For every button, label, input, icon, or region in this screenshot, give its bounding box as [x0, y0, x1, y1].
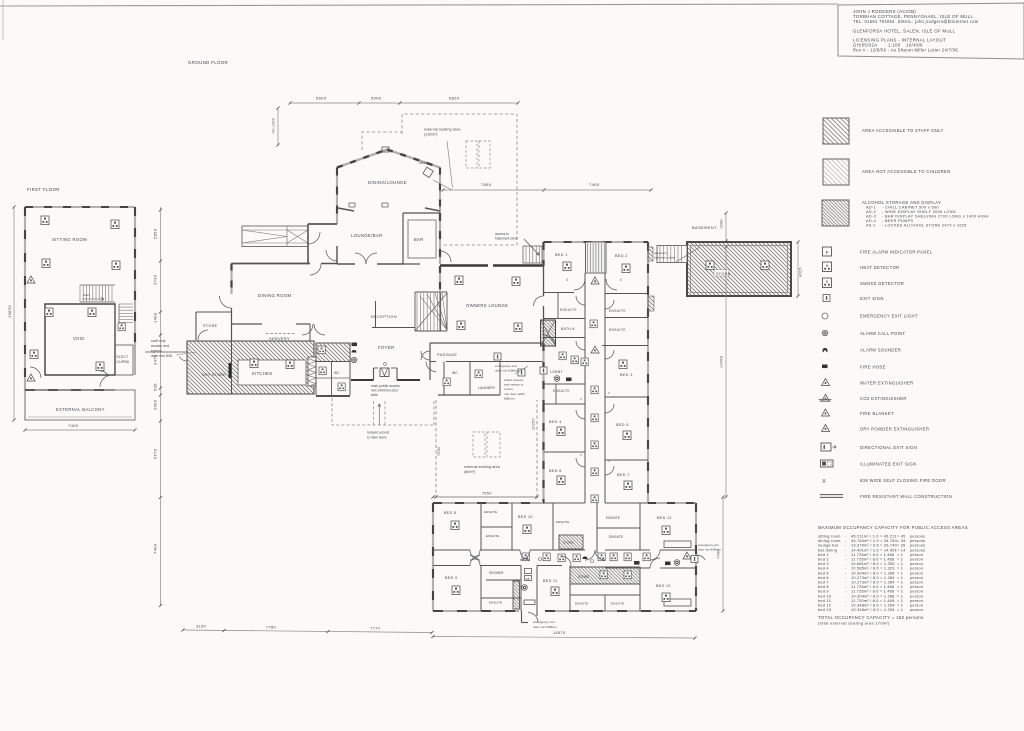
svg-text:BED 7: BED 7 — [617, 473, 630, 477]
svg-text:- CHILL CABINET 500 x 600: - CHILL CABINET 500 x 600 — [882, 206, 939, 210]
svg-text:5850: 5850 — [153, 228, 158, 239]
svg-text:LOBBY: LOBBY — [550, 370, 563, 374]
svg-text:(130m²): (130m²) — [424, 132, 438, 136]
svg-text:7400: 7400 — [589, 182, 600, 187]
svg-text:1940: 1940 — [720, 219, 724, 229]
svg-text:public access: public access — [504, 378, 524, 382]
svg-text:bed 13: bed 13 — [818, 607, 831, 612]
svg-text:(80m²): (80m²) — [464, 470, 475, 474]
svg-text:838 WIDE SELF CLOSING FIRE DOO: 838 WIDE SELF CLOSING FIRE DOOR — [860, 478, 946, 483]
svg-text:basement store: basement store — [654, 255, 676, 259]
svg-text:and egress to: and egress to — [504, 383, 524, 387]
svg-text:FIRE ALARM INDICATOR PANEL: FIRE ALARM INDICATOR PANEL — [860, 250, 933, 255]
svg-text:7650: 7650 — [437, 446, 441, 456]
svg-text:ENSUITE: ENSUITE — [486, 534, 499, 538]
svg-text:AS-1: AS-1 — [866, 224, 876, 228]
svg-text:RECEPTION: RECEPTION — [371, 314, 397, 319]
svg-text:4015: 4015 — [799, 267, 803, 277]
svg-text:OWNERS LOUNGE: OWNERS LOUNGE — [466, 303, 508, 308]
svg-text:staff only: staff only — [151, 339, 166, 343]
svg-text:STORE: STORE — [203, 324, 218, 328]
svg-text:3730: 3730 — [153, 274, 158, 285]
svg-text:2060: 2060 — [153, 399, 158, 410]
svg-text:AREA ACCESSIBLE TO STAFF ONLY: AREA ACCESSIBLE TO STAFF ONLY — [862, 128, 944, 133]
svg-text:ENSUITE: ENSUITE — [556, 520, 569, 524]
svg-text:WATER EXTINGUISHER: WATER EXTINGUISHER — [860, 380, 914, 385]
svg-text:838mm: 838mm — [504, 396, 515, 400]
svg-text:door min 838mm: door min 838mm — [698, 548, 721, 552]
svg-text:access to: access to — [495, 232, 509, 236]
svg-text:BED 5: BED 5 — [616, 423, 629, 427]
svg-text:ALCOHOL STORAGE AND DISPLAY: ALCOHOL STORAGE AND DISPLAY — [862, 200, 941, 205]
svg-text:BED 1: BED 1 — [555, 253, 568, 257]
svg-text:door min 838mm: door min 838mm — [533, 625, 557, 629]
svg-text:WC: WC — [452, 371, 458, 375]
svg-text:ENSUITE: ENSUITE — [611, 602, 624, 606]
svg-text:main public access: main public access — [371, 384, 400, 388]
svg-text:BED 13: BED 13 — [656, 584, 671, 588]
svg-text:STORE: STORE — [563, 541, 574, 545]
svg-text:7780: 7780 — [266, 625, 277, 630]
svg-text:STORE: STORE — [716, 272, 731, 276]
svg-text:TOTAL OCCUPANCY CAPACITY = 150: TOTAL OCCUPANCY CAPACITY = 150 persons — [818, 615, 924, 620]
svg-text:ENSUITE: ENSUITE — [609, 328, 626, 332]
svg-text:SERVERY: SERVERY — [269, 336, 290, 341]
svg-text:EXTERNAL BALCONY: EXTERNAL BALCONY — [56, 407, 105, 412]
svg-text:BED 11: BED 11 — [543, 579, 558, 583]
svg-text:ENSUITE: ENSUITE — [484, 510, 497, 514]
svg-text:GLENFORSA HOTEL, SALEN, ISLE O: GLENFORSA HOTEL, SALEN, ISLE OF MULL — [853, 28, 956, 33]
svg-text:10.348m² / 8.0 = 1.294: 10.348m² / 8.0 = 1.294 — [851, 607, 895, 612]
svg-text:DRY STORE: DRY STORE — [202, 373, 226, 377]
svg-text:PASSAGE: PASSAGE — [437, 353, 457, 357]
svg-text:AD-2: AD-2 — [866, 210, 876, 214]
svg-text:door min 838mm: door min 838mm — [495, 369, 519, 373]
svg-text:X: X — [580, 397, 582, 401]
svg-text:to main doors: to main doors — [367, 435, 387, 439]
svg-text:15820: 15820 — [7, 305, 12, 318]
svg-text:stove: stove — [419, 161, 427, 165]
svg-text:ALARM SOUNDER: ALARM SOUNDER — [860, 348, 901, 353]
svg-text:(total external seating area 1: (total external seating area 170m²) — [818, 620, 890, 625]
svg-text:BED 3: BED 3 — [620, 373, 633, 377]
svg-text:DINING/LOUNGE: DINING/LOUNGE — [368, 180, 407, 185]
svg-text:X: X — [608, 391, 610, 395]
svg-text:AD-4: AD-4 — [866, 219, 876, 223]
svg-text:7400: 7400 — [68, 423, 79, 428]
svg-text:FIRE RESISTANT WALL CONSTRUCTI: FIRE RESISTANT WALL CONSTRUCTION — [860, 494, 952, 499]
svg-text:EMAIL: john.jrodgers@btinterne: EMAIL: john.jrodgers@btinternet.com — [898, 19, 979, 24]
svg-text:FIRST FLOOR: FIRST FLOOR — [27, 187, 60, 192]
svg-text:BED 9: BED 9 — [445, 576, 457, 580]
svg-text:7400: 7400 — [153, 543, 158, 554]
svg-text:rooms: rooms — [504, 387, 513, 391]
svg-text:DIRECTIONAL EXIT SIGN: DIRECTIONAL EXIT SIGN — [860, 445, 917, 450]
svg-text:WB: WB — [526, 578, 530, 581]
svg-text:10250: 10250 — [532, 418, 536, 430]
svg-text:ENSUITE: ENSUITE — [609, 309, 626, 313]
svg-text:+0/-1300: +0/-1300 — [272, 118, 276, 134]
svg-text:access and: access and — [151, 344, 169, 348]
svg-text:F: F — [826, 250, 829, 255]
svg-text:GROUND FLOOR: GROUND FLOOR — [188, 60, 228, 65]
svg-text:BED 8: BED 8 — [444, 511, 456, 515]
svg-text:min door width: min door width — [504, 392, 525, 396]
svg-text:X: X — [577, 361, 579, 365]
svg-text:FIRE HOSE: FIRE HOSE — [860, 364, 886, 369]
svg-text:AD-3: AD-3 — [866, 215, 876, 219]
svg-text:3100: 3100 — [196, 624, 207, 629]
svg-text:BATH A: BATH A — [561, 327, 575, 331]
svg-text:basement store: basement store — [495, 237, 518, 241]
svg-text:7770: 7770 — [370, 626, 381, 631]
svg-text:SITTING ROOM: SITTING ROOM — [52, 237, 87, 242]
svg-text:ENSUITE: ENSUITE — [606, 516, 620, 520]
svg-text:ENSUITE: ENSUITE — [489, 601, 502, 605]
svg-text:wide: wide — [371, 393, 378, 397]
svg-text:MAXIMUM OCCUPANCY CAPACITY FOR: MAXIMUM OCCUPANCY CAPACITY FOR PUBLIC AC… — [818, 525, 968, 530]
svg-text:CUPBD: CUPBD — [117, 360, 130, 364]
svg-text:WC: WC — [334, 371, 340, 375]
svg-text:- WINE DISPLAY SHELF 3000 LON: - WINE DISPLAY SHELF 3000 LONG — [882, 210, 956, 214]
svg-text:X: X — [608, 459, 610, 463]
svg-text:5570: 5570 — [153, 448, 158, 459]
svg-text:AD-1: AD-1 — [866, 206, 876, 210]
svg-text:BED 10: BED 10 — [518, 515, 533, 519]
svg-text:STORE: STORE — [578, 575, 589, 579]
svg-text:BED 4: BED 4 — [549, 420, 562, 424]
svg-text:BED 12: BED 12 — [657, 516, 672, 520]
svg-text:BED 6: BED 6 — [549, 469, 562, 473]
svg-text:FIRE BLANKET: FIRE BLANKET — [860, 411, 894, 416]
svg-text:door min 838: door min 838 — [151, 354, 172, 358]
svg-text:1400: 1400 — [153, 312, 158, 323]
svg-text:Rev A - 12/8/06 - As Sharon Mi: Rev A - 12/8/06 - As Sharon Miller Lette… — [853, 47, 958, 52]
svg-text:BED 2: BED 2 — [615, 254, 628, 258]
svg-text:DINING ROOM: DINING ROOM — [258, 293, 292, 298]
svg-text:X: X — [822, 479, 826, 485]
svg-text:external seating area: external seating area — [464, 465, 500, 469]
svg-text:- BEER PUMPS: - BEER PUMPS — [882, 219, 914, 223]
svg-text:7650: 7650 — [482, 492, 492, 496]
svg-text:TEL: 01681 704054: TEL: 01681 704054 — [853, 19, 895, 24]
svg-text:emergency exit: emergency exit — [533, 620, 555, 624]
svg-text:ILLUMINATED EXIT SIGN: ILLUMINATED EXIT SIGN — [860, 462, 917, 467]
svg-text:emergency exit: emergency exit — [698, 543, 719, 547]
svg-text:down: down — [83, 293, 90, 297]
svg-text:CO2 EXTINGUISHER: CO2 EXTINGUISHER — [860, 396, 907, 401]
svg-text:ENSUITE: ENSUITE — [609, 535, 623, 539]
svg-text:5600: 5600 — [316, 96, 327, 101]
svg-text:500: 500 — [153, 383, 158, 391]
svg-text:LAUNDRY: LAUNDRY — [478, 386, 496, 390]
svg-text:VOID: VOID — [73, 336, 85, 341]
svg-text:KITCHEN: KITCHEN — [252, 371, 272, 376]
svg-text:AREA NOT ACCESSIBLE TO CHILDRE: AREA NOT ACCESSIBLE TO CHILDREN — [862, 169, 951, 174]
svg-text:14570: 14570 — [553, 630, 566, 635]
svg-text:= 1: = 1 — [897, 607, 903, 612]
svg-text:person: person — [910, 607, 923, 612]
svg-text:H: H — [826, 264, 829, 268]
svg-text:BAR: BAR — [414, 237, 424, 242]
svg-text:HEAT DETECTOR: HEAT DETECTOR — [860, 265, 899, 270]
svg-text:emergency exit: emergency exit — [495, 364, 517, 368]
svg-text:ENSUITE: ENSUITE — [560, 308, 577, 312]
svg-text:BASEMENT: BASEMENT — [692, 225, 717, 230]
svg-text:ELECT: ELECT — [117, 355, 130, 359]
svg-text:ENSUITE: ENSUITE — [575, 602, 588, 606]
svg-text:SMOKE DETECTOR: SMOKE DETECTOR — [860, 281, 904, 286]
svg-text:14450: 14450 — [720, 356, 724, 368]
svg-text:ramped access: ramped access — [367, 431, 390, 435]
svg-text:SHOWER: SHOWER — [489, 571, 504, 575]
svg-text:7650: 7650 — [481, 182, 492, 187]
svg-text:- LOCKED ALCOHOL STORE 2470 x: - LOCKED ALCOHOL STORE 2470 x 1625 — [882, 224, 967, 228]
svg-text:DRY POWDER EXTINGUISHER: DRY POWDER EXTINGUISHER — [860, 426, 929, 431]
svg-text:external seating area: external seating area — [424, 128, 461, 132]
svg-text:X: X — [580, 453, 582, 457]
svg-text:access to: access to — [654, 251, 667, 255]
svg-text:EMERGENCY EXIT LIGHT: EMERGENCY EXIT LIGHT — [860, 314, 918, 319]
svg-text:FOYER: FOYER — [378, 345, 395, 350]
svg-text:min 1400mm door: min 1400mm door — [371, 389, 399, 393]
svg-text:ALARM CALL POINT: ALARM CALL POINT — [860, 331, 906, 336]
svg-text:LOUNGE/BAR: LOUNGE/BAR — [351, 233, 383, 238]
svg-text:6600: 6600 — [449, 96, 460, 101]
svg-text:- BAR DISPLAY SHELVING 2700 L: - BAR DISPLAY SHELVING 2700 LONG x 1400 … — [882, 215, 989, 219]
svg-text:EXIT SIGN: EXIT SIGN — [860, 296, 884, 301]
svg-text:5000: 5000 — [371, 96, 382, 101]
